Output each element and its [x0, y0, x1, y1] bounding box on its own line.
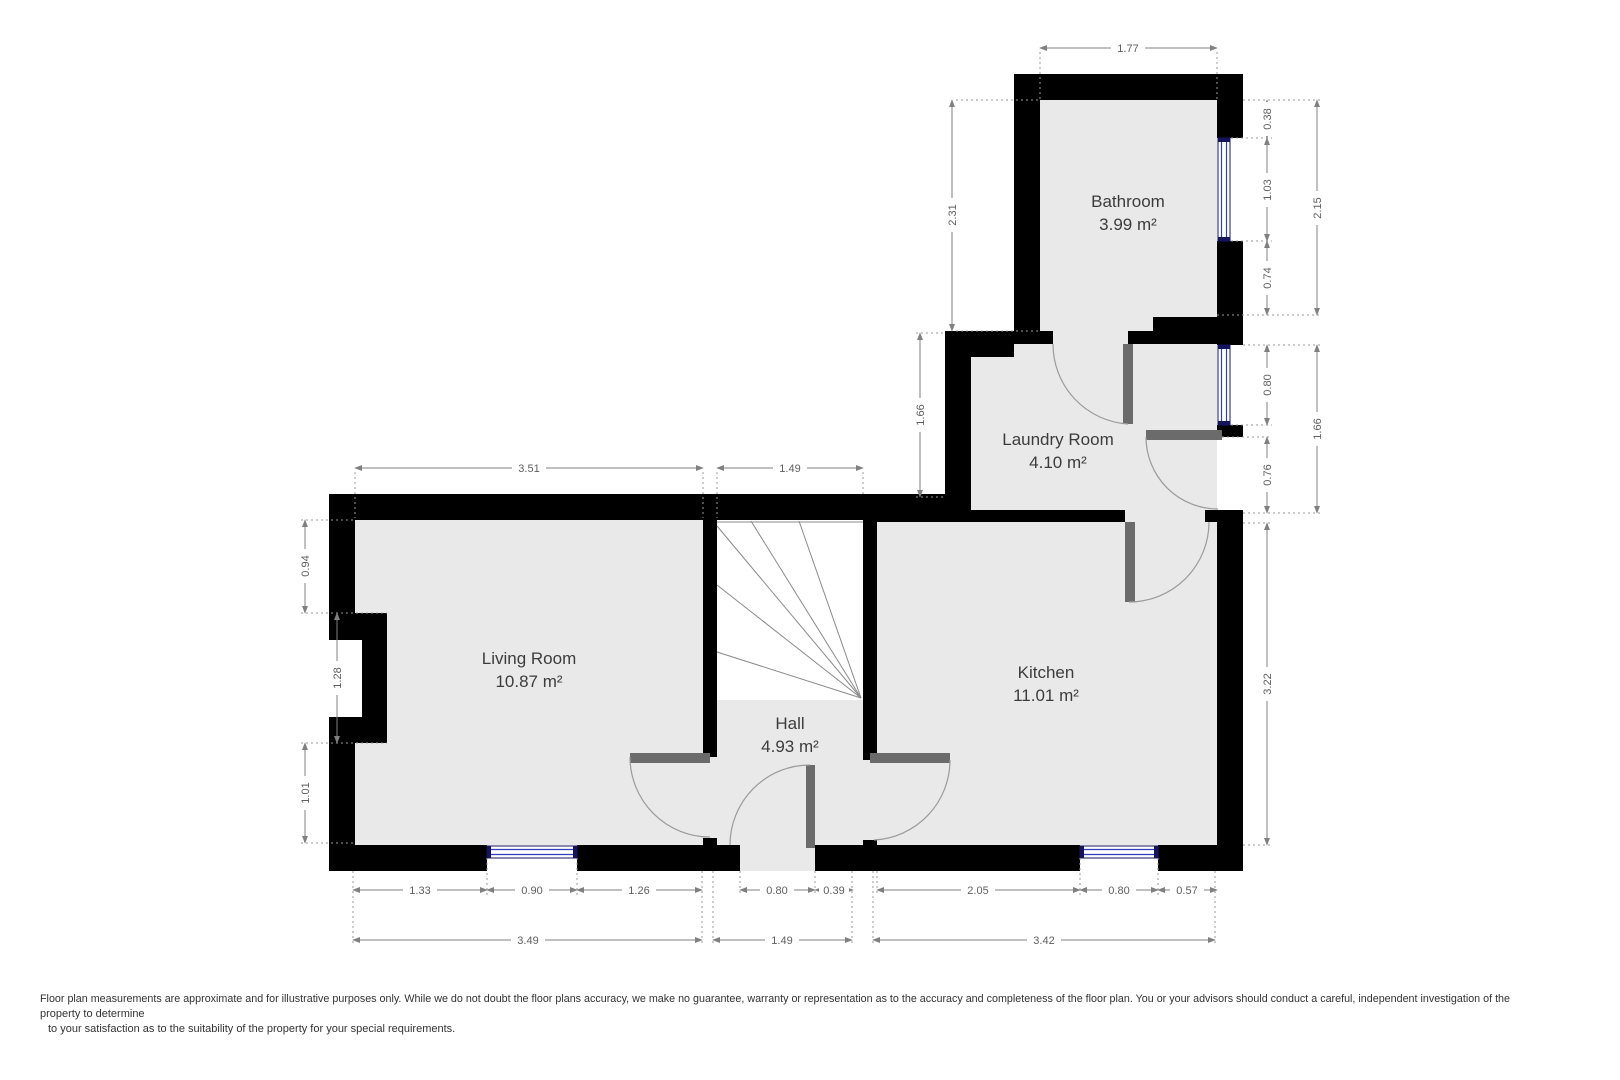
front-door-threshold — [740, 845, 815, 871]
dim-label: 0.76 — [1262, 464, 1274, 485]
dim-label: 1.77 — [1117, 43, 1138, 55]
dim-label: 1.49 — [779, 463, 800, 475]
dim-label: 0.80 — [766, 885, 787, 897]
living-room-window — [487, 845, 577, 871]
disclaimer-line-2: property to determine — [40, 1008, 145, 1020]
dim-label: 0.38 — [1262, 108, 1274, 129]
living-room-label: Living Room — [482, 649, 577, 668]
hall-area: 4.93 m² — [761, 737, 819, 756]
laundry-area: 4.10 m² — [1029, 453, 1087, 472]
hall-label: Hall — [775, 714, 804, 733]
dim-label: 2.05 — [967, 885, 988, 897]
dim-label: 0.94 — [300, 555, 312, 576]
disclaimer: Floor plan measurements are approximate … — [40, 993, 1510, 1035]
dim-label: 0.57 — [1176, 885, 1197, 897]
dim-label: 1.66 — [1312, 418, 1324, 439]
laundry-window — [1217, 345, 1243, 425]
dim-label: 1.03 — [1262, 179, 1274, 200]
dim-label: 1.01 — [300, 782, 312, 803]
dim-label: 0.90 — [521, 885, 542, 897]
laundry-floor — [971, 331, 1217, 522]
dim-label: 1.33 — [409, 885, 430, 897]
floor-plan: 1.77 3.51 1.49 2.31 1.66 0.94 1.28 1.01 … — [0, 0, 1620, 1080]
disclaimer-line-3: to your satisfaction as to the suitabili… — [48, 1023, 455, 1035]
dim-label: 0.39 — [823, 885, 844, 897]
dim-label: 1.28 — [332, 667, 344, 688]
dim-label: 1.26 — [628, 885, 649, 897]
dim-label: 1.49 — [771, 935, 792, 947]
dim-label: 3.51 — [518, 463, 539, 475]
kitchen-window — [1080, 845, 1158, 871]
dim-label: 0.80 — [1108, 885, 1129, 897]
dim-label: 3.49 — [517, 935, 538, 947]
kitchen-label: Kitchen — [1018, 663, 1075, 682]
bathroom-window — [1217, 138, 1243, 241]
staircase — [717, 520, 863, 700]
dim-label: 3.22 — [1262, 673, 1274, 694]
dim-label: 3.42 — [1033, 935, 1054, 947]
bathroom-area: 3.99 m² — [1099, 215, 1157, 234]
living-room-area: 10.87 m² — [495, 672, 562, 691]
dim-label: 2.15 — [1312, 197, 1324, 218]
dim-label: 1.66 — [915, 404, 927, 425]
bathroom-label: Bathroom — [1091, 192, 1165, 211]
dim-label: 2.31 — [947, 204, 959, 225]
dim-label: 0.80 — [1262, 374, 1274, 395]
kitchen-area: 11.01 m² — [1013, 686, 1079, 705]
disclaimer-line-1: Floor plan measurements are approximate … — [40, 993, 1510, 1005]
dim-label: 0.74 — [1262, 267, 1274, 288]
laundry-label: Laundry Room — [1002, 430, 1114, 449]
